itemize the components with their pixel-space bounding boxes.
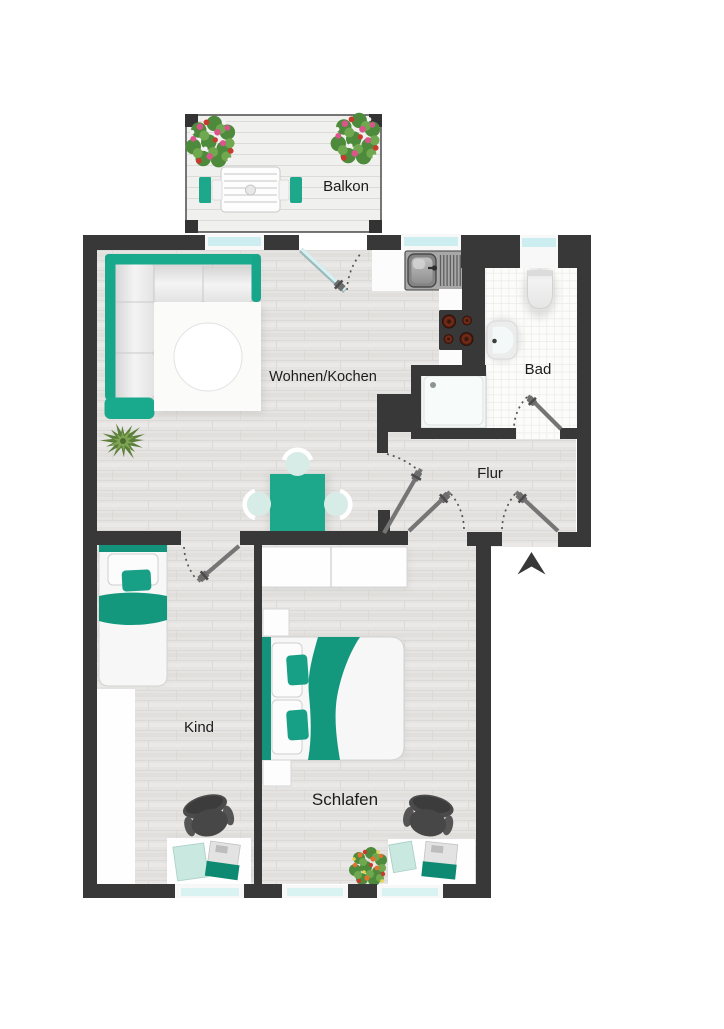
svg-text:Wohnen/Kochen: Wohnen/Kochen: [269, 369, 377, 385]
svg-text:Schlafen: Schlafen: [312, 790, 378, 809]
svg-text:Balkon: Balkon: [323, 178, 369, 195]
svg-text:Bad: Bad: [525, 361, 552, 378]
svg-text:Kind: Kind: [184, 719, 214, 736]
svg-text:Flur: Flur: [477, 465, 503, 482]
